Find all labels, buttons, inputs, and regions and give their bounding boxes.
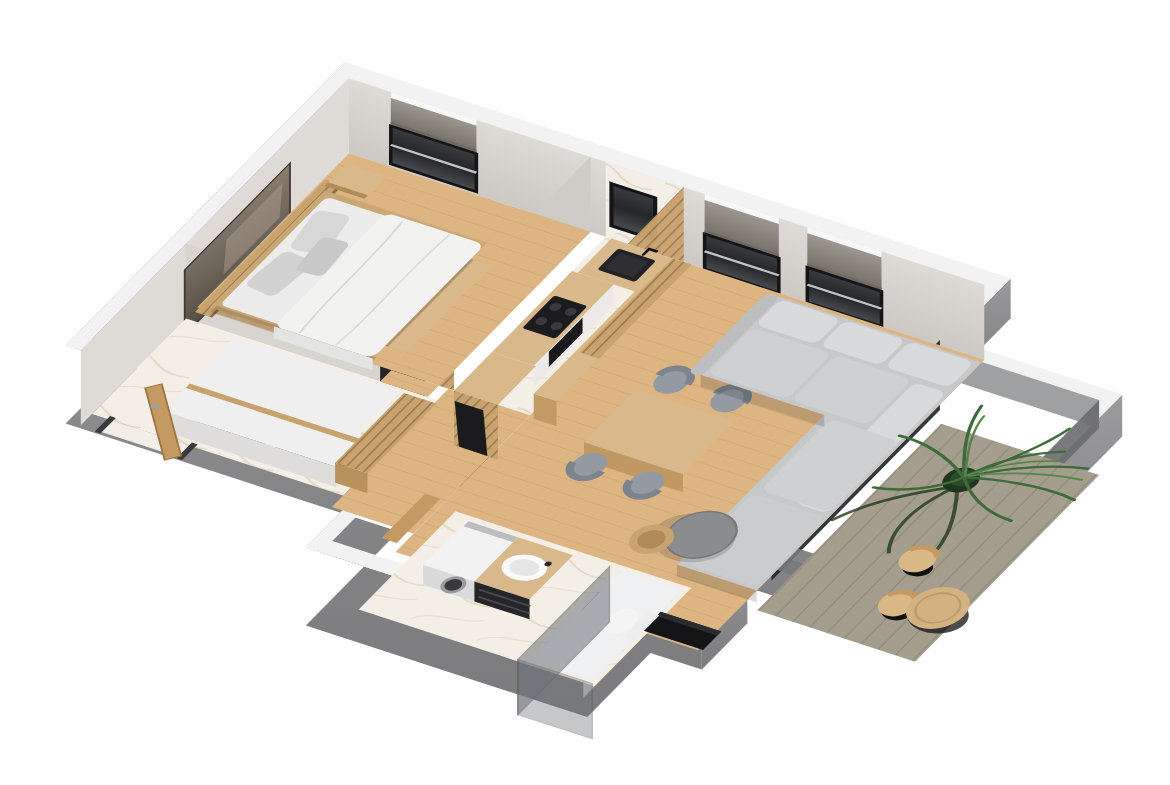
floor-plan-svg [0,0,1170,785]
floor-plan-render [0,0,1170,785]
